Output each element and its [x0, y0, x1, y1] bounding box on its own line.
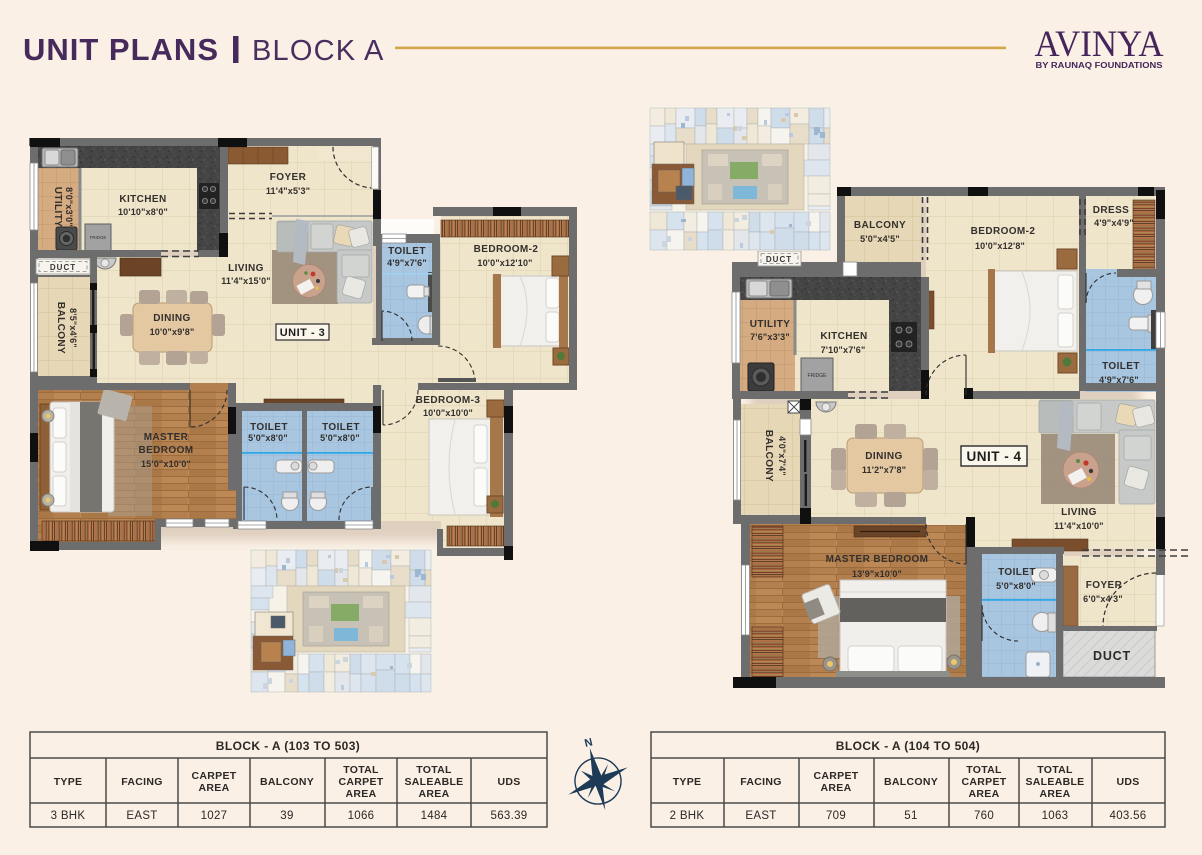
svg-text:BLOCK - A (103 TO 503): BLOCK - A (103 TO 503) [216, 739, 360, 753]
svg-text:AREA: AREA [969, 788, 1000, 800]
svg-text:4'0"x7'4": 4'0"x7'4" [777, 436, 787, 476]
svg-text:EAST: EAST [745, 810, 776, 822]
svg-text:TOILET: TOILET [322, 422, 360, 433]
svg-text:FOYER: FOYER [1086, 580, 1123, 591]
svg-text:1066: 1066 [348, 810, 375, 822]
svg-text:UNIT - 4: UNIT - 4 [966, 449, 1021, 464]
svg-text:10'0"x9'8": 10'0"x9'8" [150, 327, 195, 337]
svg-text:SALEABLE: SALEABLE [405, 776, 464, 788]
svg-text:UNIT - 3: UNIT - 3 [280, 327, 326, 339]
svg-text:4'9"x4'9": 4'9"x4'9" [1094, 218, 1134, 228]
svg-text:SALEABLE: SALEABLE [1026, 776, 1085, 788]
svg-text:51: 51 [904, 810, 917, 822]
svg-text:1027: 1027 [201, 810, 228, 822]
svg-text:11'4"x5'3": 11'4"x5'3" [266, 186, 310, 196]
svg-text:4'9"x7'6": 4'9"x7'6" [1099, 375, 1139, 385]
svg-text:BALCONY: BALCONY [763, 430, 774, 482]
svg-text:UTILITY: UTILITY [52, 187, 63, 228]
svg-text:403.56: 403.56 [1110, 810, 1147, 822]
svg-text:DINING: DINING [865, 451, 902, 462]
svg-text:FACING: FACING [121, 776, 162, 788]
svg-text:8'0"x3'0": 8'0"x3'0" [64, 187, 74, 227]
svg-text:TOTAL: TOTAL [343, 764, 379, 776]
svg-text:FRIDGE: FRIDGE [808, 373, 828, 379]
svg-text:CARPET: CARPET [192, 770, 237, 782]
svg-text:BALCONY: BALCONY [884, 776, 938, 788]
svg-text:13'9"x10'0": 13'9"x10'0" [852, 569, 902, 579]
svg-text:AREA: AREA [346, 788, 377, 800]
svg-text:1484: 1484 [421, 810, 448, 822]
svg-text:8'5"x4'6": 8'5"x4'6" [68, 308, 78, 348]
svg-text:11'4"x10'0": 11'4"x10'0" [1054, 521, 1104, 531]
svg-text:7'10"x7'6": 7'10"x7'6" [821, 345, 866, 355]
svg-text:BALCONY: BALCONY [260, 776, 314, 788]
svg-text:760: 760 [974, 810, 994, 822]
svg-text:BALCONY: BALCONY [854, 220, 906, 231]
svg-text:LIVING: LIVING [228, 263, 264, 274]
svg-text:MASTER BEDROOM: MASTER BEDROOM [826, 554, 929, 565]
svg-text:5'0"x8'0": 5'0"x8'0" [320, 433, 360, 443]
svg-text:BLOCK A: BLOCK A [252, 35, 385, 67]
svg-text:BEDROOM-2: BEDROOM-2 [474, 244, 539, 255]
svg-text:KITCHEN: KITCHEN [119, 194, 166, 205]
svg-text:6'0"x4'3": 6'0"x4'3" [1083, 594, 1123, 604]
svg-text:BEDROOM-3: BEDROOM-3 [416, 395, 481, 406]
svg-text:DUCT: DUCT [1093, 649, 1131, 663]
svg-text:709: 709 [826, 810, 846, 822]
svg-text:DRESS: DRESS [1093, 205, 1129, 216]
svg-text:UNIT PLANS: UNIT PLANS [23, 32, 219, 67]
svg-text:11'4"x15'0": 11'4"x15'0" [221, 276, 271, 286]
svg-text:TYPE: TYPE [673, 776, 702, 788]
svg-text:10'0"x12'8": 10'0"x12'8" [975, 241, 1025, 251]
svg-text:DUCT: DUCT [50, 263, 76, 272]
svg-text:FOYER: FOYER [270, 172, 307, 183]
svg-text:KITCHEN: KITCHEN [820, 331, 867, 342]
svg-text:DUCT: DUCT [766, 255, 792, 264]
svg-text:DINING: DINING [153, 313, 190, 324]
svg-text:AREA: AREA [1040, 788, 1071, 800]
svg-text:3 BHK: 3 BHK [51, 810, 86, 822]
svg-text:5'0"x8'0": 5'0"x8'0" [996, 581, 1036, 591]
svg-text:TOTAL: TOTAL [1037, 764, 1073, 776]
svg-text:UDS: UDS [1116, 776, 1139, 788]
svg-text:BEDROOM: BEDROOM [138, 445, 193, 456]
svg-text:10'0"x12'10": 10'0"x12'10" [477, 258, 532, 268]
svg-text:4'9"x7'6": 4'9"x7'6" [387, 258, 427, 268]
svg-text:TOTAL: TOTAL [416, 764, 452, 776]
svg-text:5'0"x4'5": 5'0"x4'5" [860, 234, 900, 244]
svg-text:15'0"x10'0": 15'0"x10'0" [141, 459, 191, 469]
svg-text:UTILITY: UTILITY [750, 319, 791, 330]
svg-text:TOTAL: TOTAL [966, 764, 1002, 776]
svg-text:CARPET: CARPET [339, 776, 384, 788]
svg-text:5'0"x8'0": 5'0"x8'0" [248, 433, 288, 443]
svg-text:10'10"x8'0": 10'10"x8'0" [118, 207, 168, 217]
svg-text:563.39: 563.39 [491, 810, 528, 822]
svg-text:CARPET: CARPET [962, 776, 1007, 788]
svg-text:AREA: AREA [199, 782, 230, 794]
svg-text:FRIDGE: FRIDGE [90, 235, 107, 240]
svg-text:AREA: AREA [821, 782, 852, 794]
svg-text:2 BHK: 2 BHK [670, 810, 705, 822]
svg-text:TOILET: TOILET [250, 422, 288, 433]
svg-text:LIVING: LIVING [1061, 507, 1097, 518]
svg-text:BALCONY: BALCONY [55, 302, 66, 354]
svg-text:AREA: AREA [419, 788, 450, 800]
svg-text:FACING: FACING [740, 776, 781, 788]
svg-text:TOILET: TOILET [388, 246, 426, 257]
svg-text:AVINYA: AVINYA [1035, 24, 1164, 65]
svg-text:TOILET: TOILET [998, 567, 1036, 578]
svg-text:EAST: EAST [126, 810, 157, 822]
svg-text:TOILET: TOILET [1102, 361, 1140, 372]
svg-text:UDS: UDS [497, 776, 520, 788]
svg-text:BEDROOM-2: BEDROOM-2 [971, 226, 1036, 237]
svg-text:TYPE: TYPE [54, 776, 83, 788]
svg-text:39: 39 [280, 810, 293, 822]
svg-text:MASTER: MASTER [144, 432, 189, 443]
svg-text:BLOCK - A (104 TO 504): BLOCK - A (104 TO 504) [836, 739, 980, 753]
svg-text:7'6"x3'3": 7'6"x3'3" [750, 332, 790, 342]
svg-text:BY RAUNAQ FOUNDATIONS: BY RAUNAQ FOUNDATIONS [1036, 60, 1163, 70]
svg-text:10'0"x10'0": 10'0"x10'0" [423, 408, 473, 418]
svg-text:1063: 1063 [1042, 810, 1069, 822]
svg-text:CARPET: CARPET [814, 770, 859, 782]
svg-text:11'2"x7'8": 11'2"x7'8" [862, 465, 906, 475]
